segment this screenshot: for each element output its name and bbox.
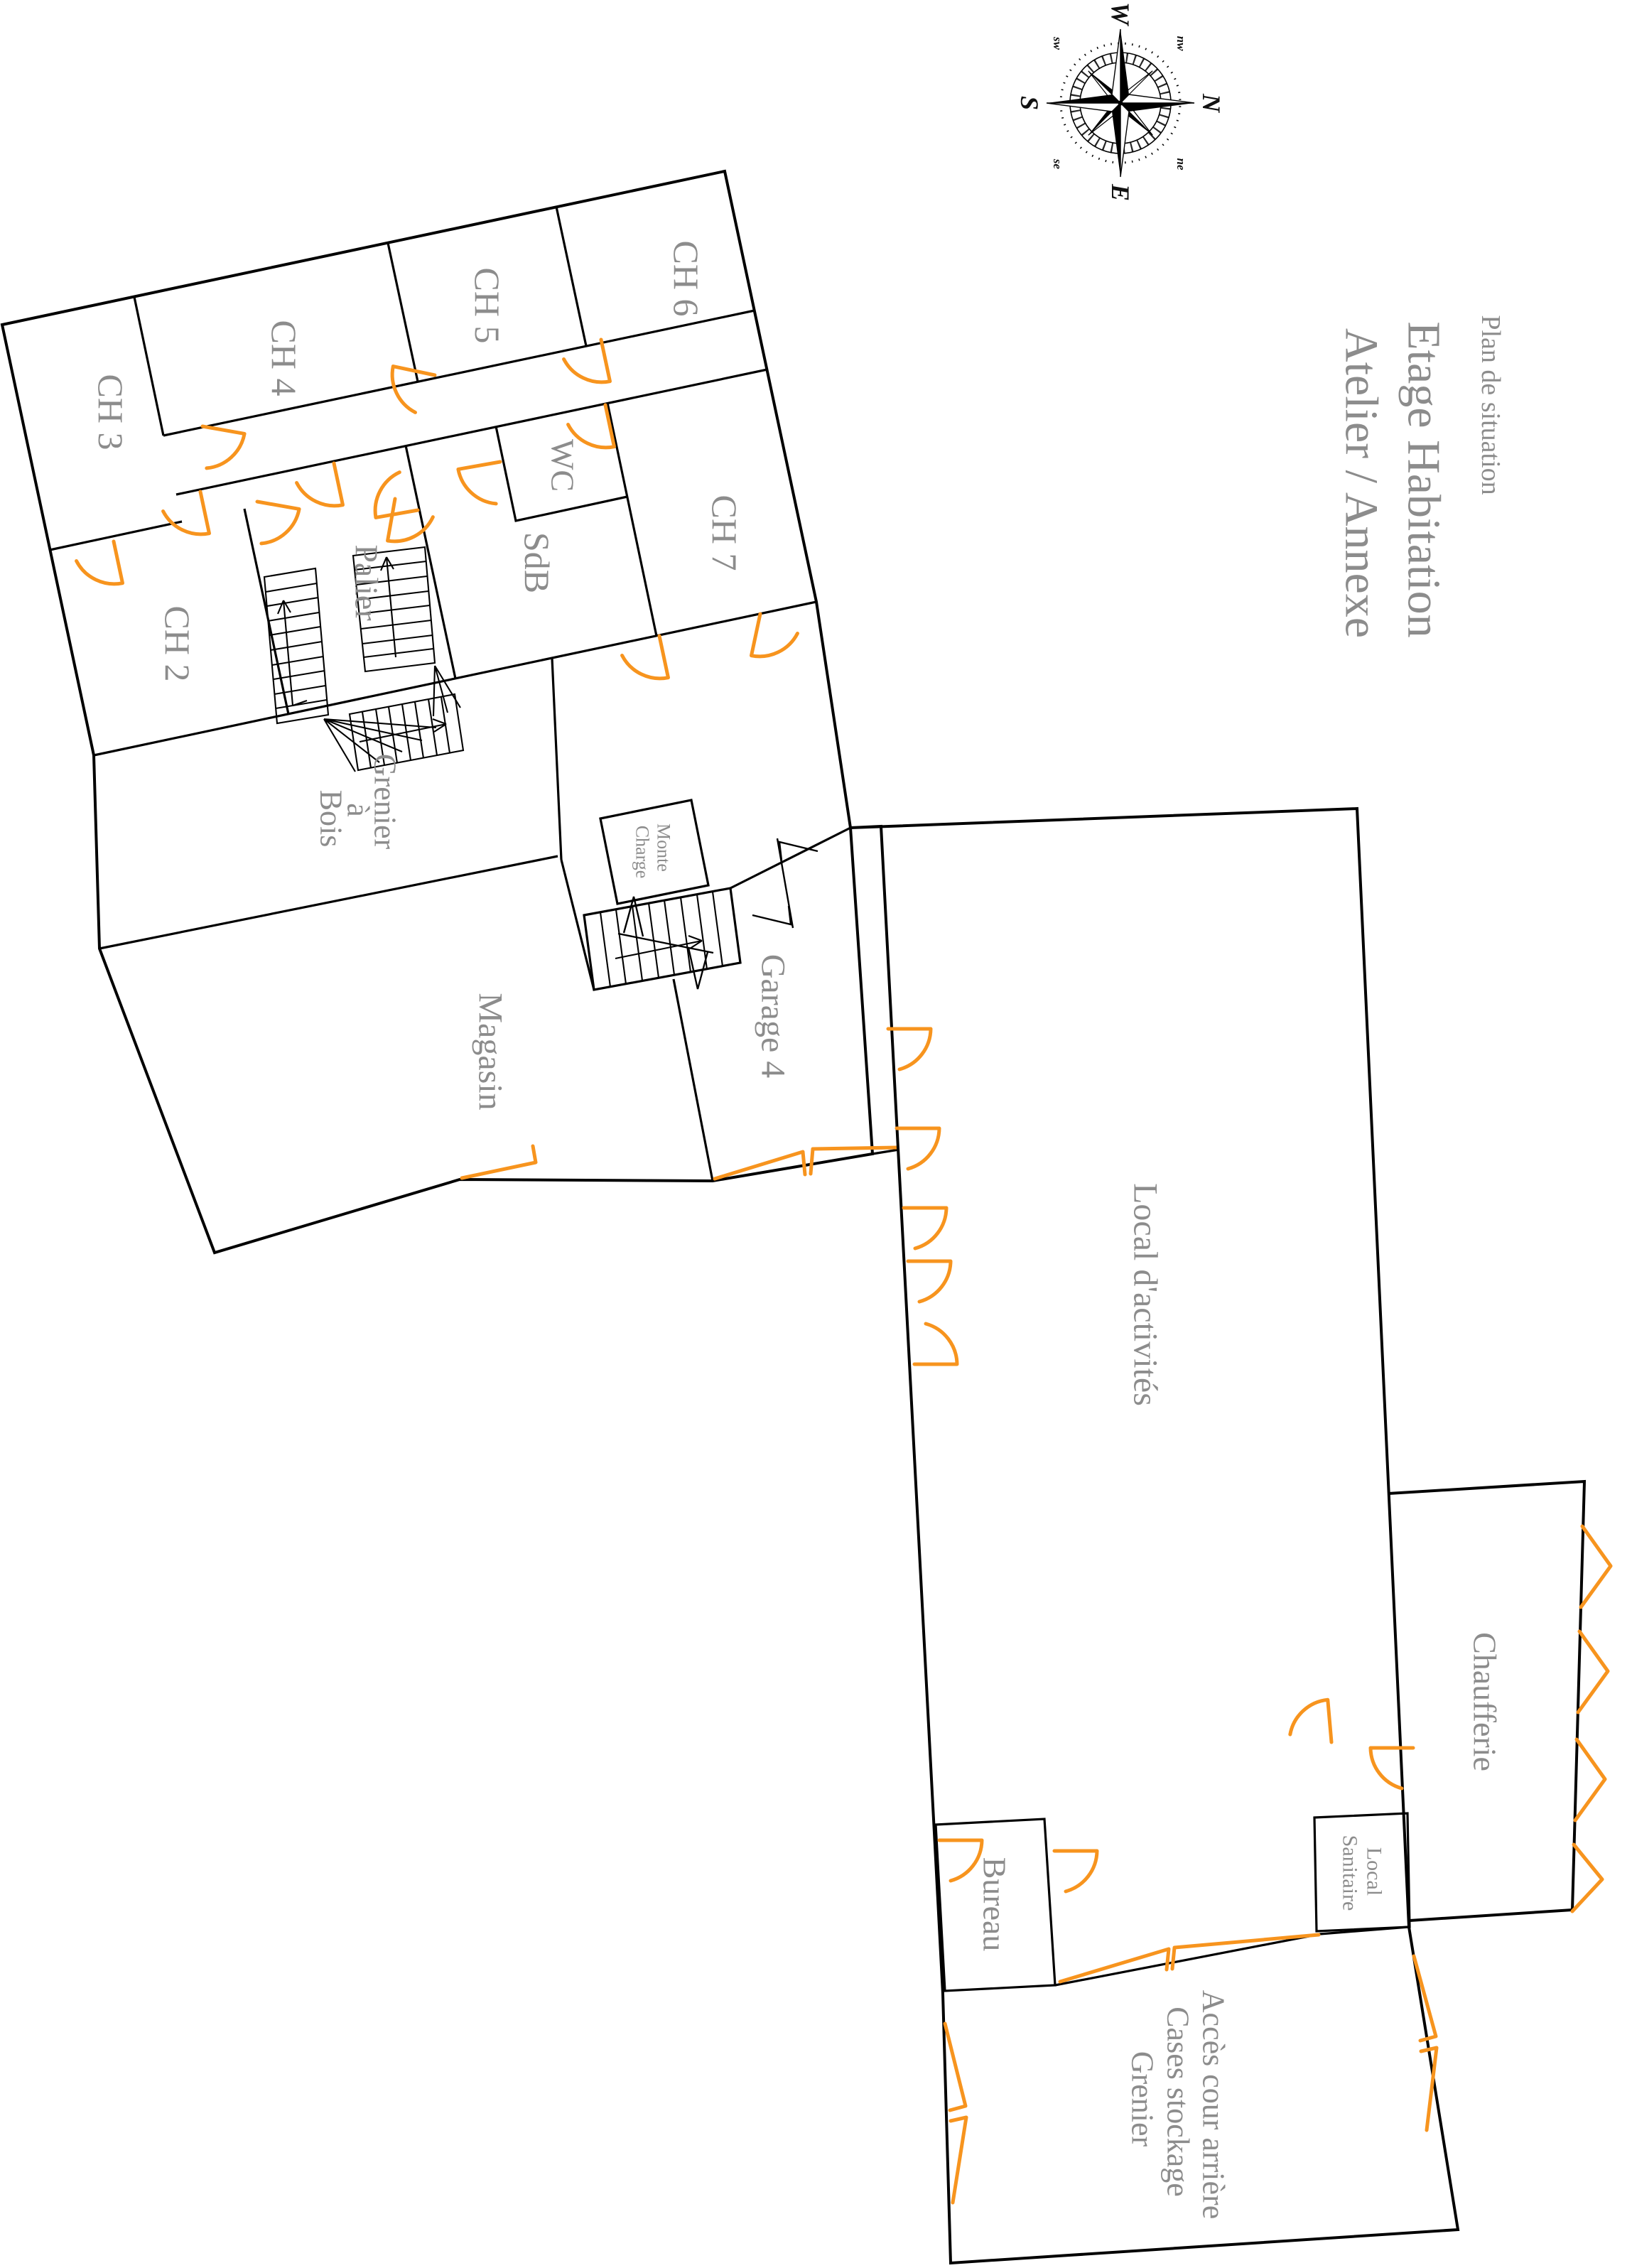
room-label-garage4: Garage 4 [755, 954, 792, 1079]
room-label-grenier-bois-3: Bois [314, 790, 349, 848]
room-label-grenier-bois-1: Grenier [368, 754, 403, 850]
compass-label-n: N [1197, 93, 1226, 114]
corridor-north-wall [163, 310, 755, 436]
door-corridor-ch2 [161, 492, 209, 542]
room-label-ch4: CH 4 [264, 320, 304, 396]
room-label-ch2: CH 2 [158, 606, 198, 682]
room-label-local-sanitaire-1: Local [1363, 1847, 1386, 1896]
door-magasin-south [462, 1146, 536, 1178]
chaufferie-east-opening-4 [1572, 1845, 1602, 1911]
room-label-acces-2: Cases stockage [1161, 2007, 1196, 2197]
chaufferie-east-opening-2 [1578, 1631, 1608, 1712]
room-label-palier: Palier [349, 544, 385, 620]
door-local-sanitaire [1287, 1700, 1331, 1746]
door-ch2-ch3 [74, 541, 122, 592]
door-garage-south-double [715, 1147, 897, 1179]
floor-plan-drawing: N E S W nw ne sw se Plan de situation Et… [0, 0, 1632, 2268]
wall-ch4-ch5 [388, 243, 418, 382]
door-bureau-west [939, 1840, 982, 1881]
garage-south-wall-extension [872, 1150, 899, 1154]
chaufferie-east-opening-1 [1581, 1526, 1611, 1607]
garage-north-wall [730, 828, 850, 888]
room-label-sdb: SdB [517, 532, 557, 593]
wall-ch3-ch4 [134, 297, 163, 436]
room-label-ch5: CH 5 [468, 268, 507, 344]
wall-sdb-ch7 [607, 403, 656, 636]
plan-subtitle: Plan de situation [1476, 315, 1506, 495]
room-label-monte-charge-1: Monte [654, 823, 674, 872]
door-wc [458, 462, 507, 509]
annexe-doors [888, 1029, 1611, 2203]
room-label-magasin: Magasin [472, 993, 509, 1110]
compass-star [1047, 29, 1194, 177]
door-palier-grenier [388, 499, 436, 548]
magasin-north-wall [99, 856, 558, 949]
room-label-ch7: CH 7 [705, 495, 745, 571]
compass-label-se: se [1051, 158, 1064, 170]
door-bureau-east [1054, 1851, 1097, 1891]
building-annexe: Local d'activités Bureau Chaufferie Loca… [850, 809, 1611, 2263]
door-local-west-3 [904, 1208, 946, 1248]
slab-south-wall [94, 602, 816, 755]
garage-west-wall [674, 979, 713, 1181]
door-grenier-double-left [620, 636, 668, 686]
floor-plan-page: N E S W nw ne sw se Plan de situation Et… [0, 0, 1632, 2268]
acces-north-wall [1055, 1927, 1409, 1985]
compass-label-w: W [1106, 2, 1135, 27]
door-local-west-2 [897, 1128, 939, 1169]
door-corridor-palier [294, 463, 342, 514]
compass-label-s: S [1015, 96, 1044, 110]
room-label-chaufferie: Chaufferie [1467, 1632, 1503, 1771]
door-palier-1 [250, 502, 299, 549]
compass-label-ne: ne [1174, 158, 1188, 171]
stairs-monte-charge [600, 892, 723, 987]
door-chaufferie-west [1371, 1748, 1413, 1788]
annexe-labels: Local d'activités Bureau Chaufferie Loca… [977, 1183, 1503, 2219]
wall-ch5-ch6 [556, 207, 586, 346]
building-habitation: CH 3 CH 4 CH 5 CH 6 WC SdB CH 7 Palier C… [2, 171, 899, 1253]
room-label-wc: WC [545, 439, 581, 492]
room-label-ch6: CH 6 [666, 241, 706, 317]
door-local-west-double-b [914, 1324, 957, 1364]
chaufferie-east-opening-3 [1575, 1739, 1605, 1820]
wall-ch2-palier [244, 509, 288, 714]
plan-title-line2: Atelier / Annexe [1336, 328, 1388, 638]
compass-rose-icon: N E S W nw ne sw se [1015, 2, 1226, 201]
room-label-monte-charge-2: Charge [632, 826, 653, 879]
room-label-acces-3: Grenier [1125, 2051, 1160, 2147]
room-label-acces-1: Accès cour arrière [1196, 1990, 1231, 2219]
magasin-east-wall [561, 860, 594, 990]
compass-label-e: E [1106, 183, 1135, 201]
door-grenier-double-right [752, 614, 800, 664]
monte-charge-stair-strip [584, 888, 740, 990]
plan-title-line1: Etage Habitation [1398, 321, 1450, 637]
habitation-outer-wall [2, 171, 872, 1253]
grenier-east-wall [552, 658, 561, 860]
wall-palier-sdb [406, 445, 455, 679]
compass-label-sw: sw [1051, 36, 1064, 50]
room-label-local-sanitaire-2: Sanitaire [1339, 1835, 1362, 1911]
title-block: Plan de situation Etage Habitation Ateli… [1336, 315, 1506, 638]
door-local-west-double-a [908, 1261, 951, 1302]
room-label-local-activites: Local d'activités [1127, 1183, 1164, 1406]
room-label-ch3: CH 3 [91, 374, 131, 450]
annexe-outer-wall [850, 809, 1458, 2263]
compass-label-nw: nw [1174, 36, 1188, 51]
door-ch4 [195, 426, 244, 474]
room-label-bureau: Bureau [977, 1857, 1013, 1952]
door-ch5 [384, 367, 435, 415]
